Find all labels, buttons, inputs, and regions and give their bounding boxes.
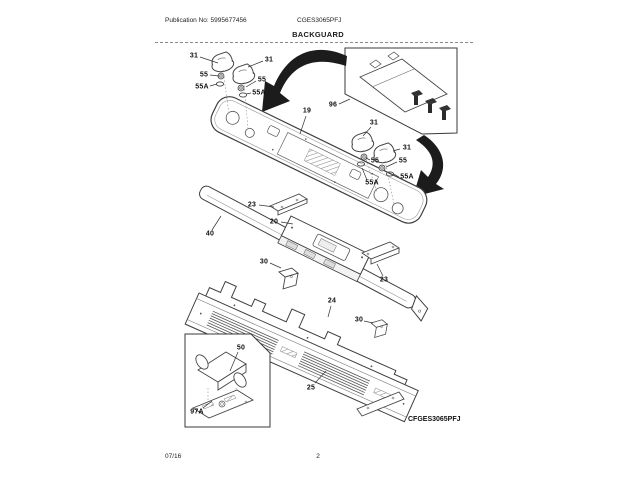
part-callout-40: 40 (206, 231, 214, 238)
part-callout-55a-c: 55A (400, 174, 413, 181)
manual-page: Publication No: 5995677456 CGES3065PFJ B… (0, 0, 640, 480)
part-callout-97a: 97A (190, 409, 203, 416)
part-callout-25: 25 (307, 385, 315, 392)
part-callout-55a-a: 55A (195, 84, 208, 91)
bracket-23-upper (270, 194, 307, 215)
part-callout-50: 50 (237, 345, 245, 352)
part-callout-19: 19 (303, 108, 311, 115)
page-number: 2 (316, 453, 320, 460)
part-callout-31-a: 31 (190, 53, 198, 60)
part-callout-31-d: 31 (403, 145, 411, 152)
diagram-model-label: CFGES3065PFJ (408, 416, 461, 423)
part-callout-55-b: 55 (258, 77, 266, 84)
part-callout-23-b: 23 (380, 277, 388, 284)
exploded-view-drawing (0, 0, 640, 480)
part-callout-55a-b: 55A (252, 90, 265, 97)
part-callout-96: 96 (329, 102, 337, 109)
part-callout-55-c: 55 (371, 158, 379, 165)
part-callout-20: 20 (270, 219, 278, 226)
part-callout-55a-d: 55A (365, 180, 378, 187)
part-callout-55-d: 55 (399, 158, 407, 165)
bracket-30-left (276, 266, 299, 291)
footer-date: 07/16 (165, 453, 181, 460)
part-callout-31-b: 31 (265, 57, 273, 64)
part-callout-55-a: 55 (200, 72, 208, 79)
part-callout-31-c: 31 (370, 120, 378, 127)
bracket-30-right (369, 318, 388, 339)
part-callout-30-a: 30 (260, 259, 268, 266)
part-callout-23-a: 23 (248, 202, 256, 209)
part-callout-30-b: 30 (355, 317, 363, 324)
inset-box-96 (345, 48, 457, 134)
part-callout-24: 24 (328, 298, 336, 305)
